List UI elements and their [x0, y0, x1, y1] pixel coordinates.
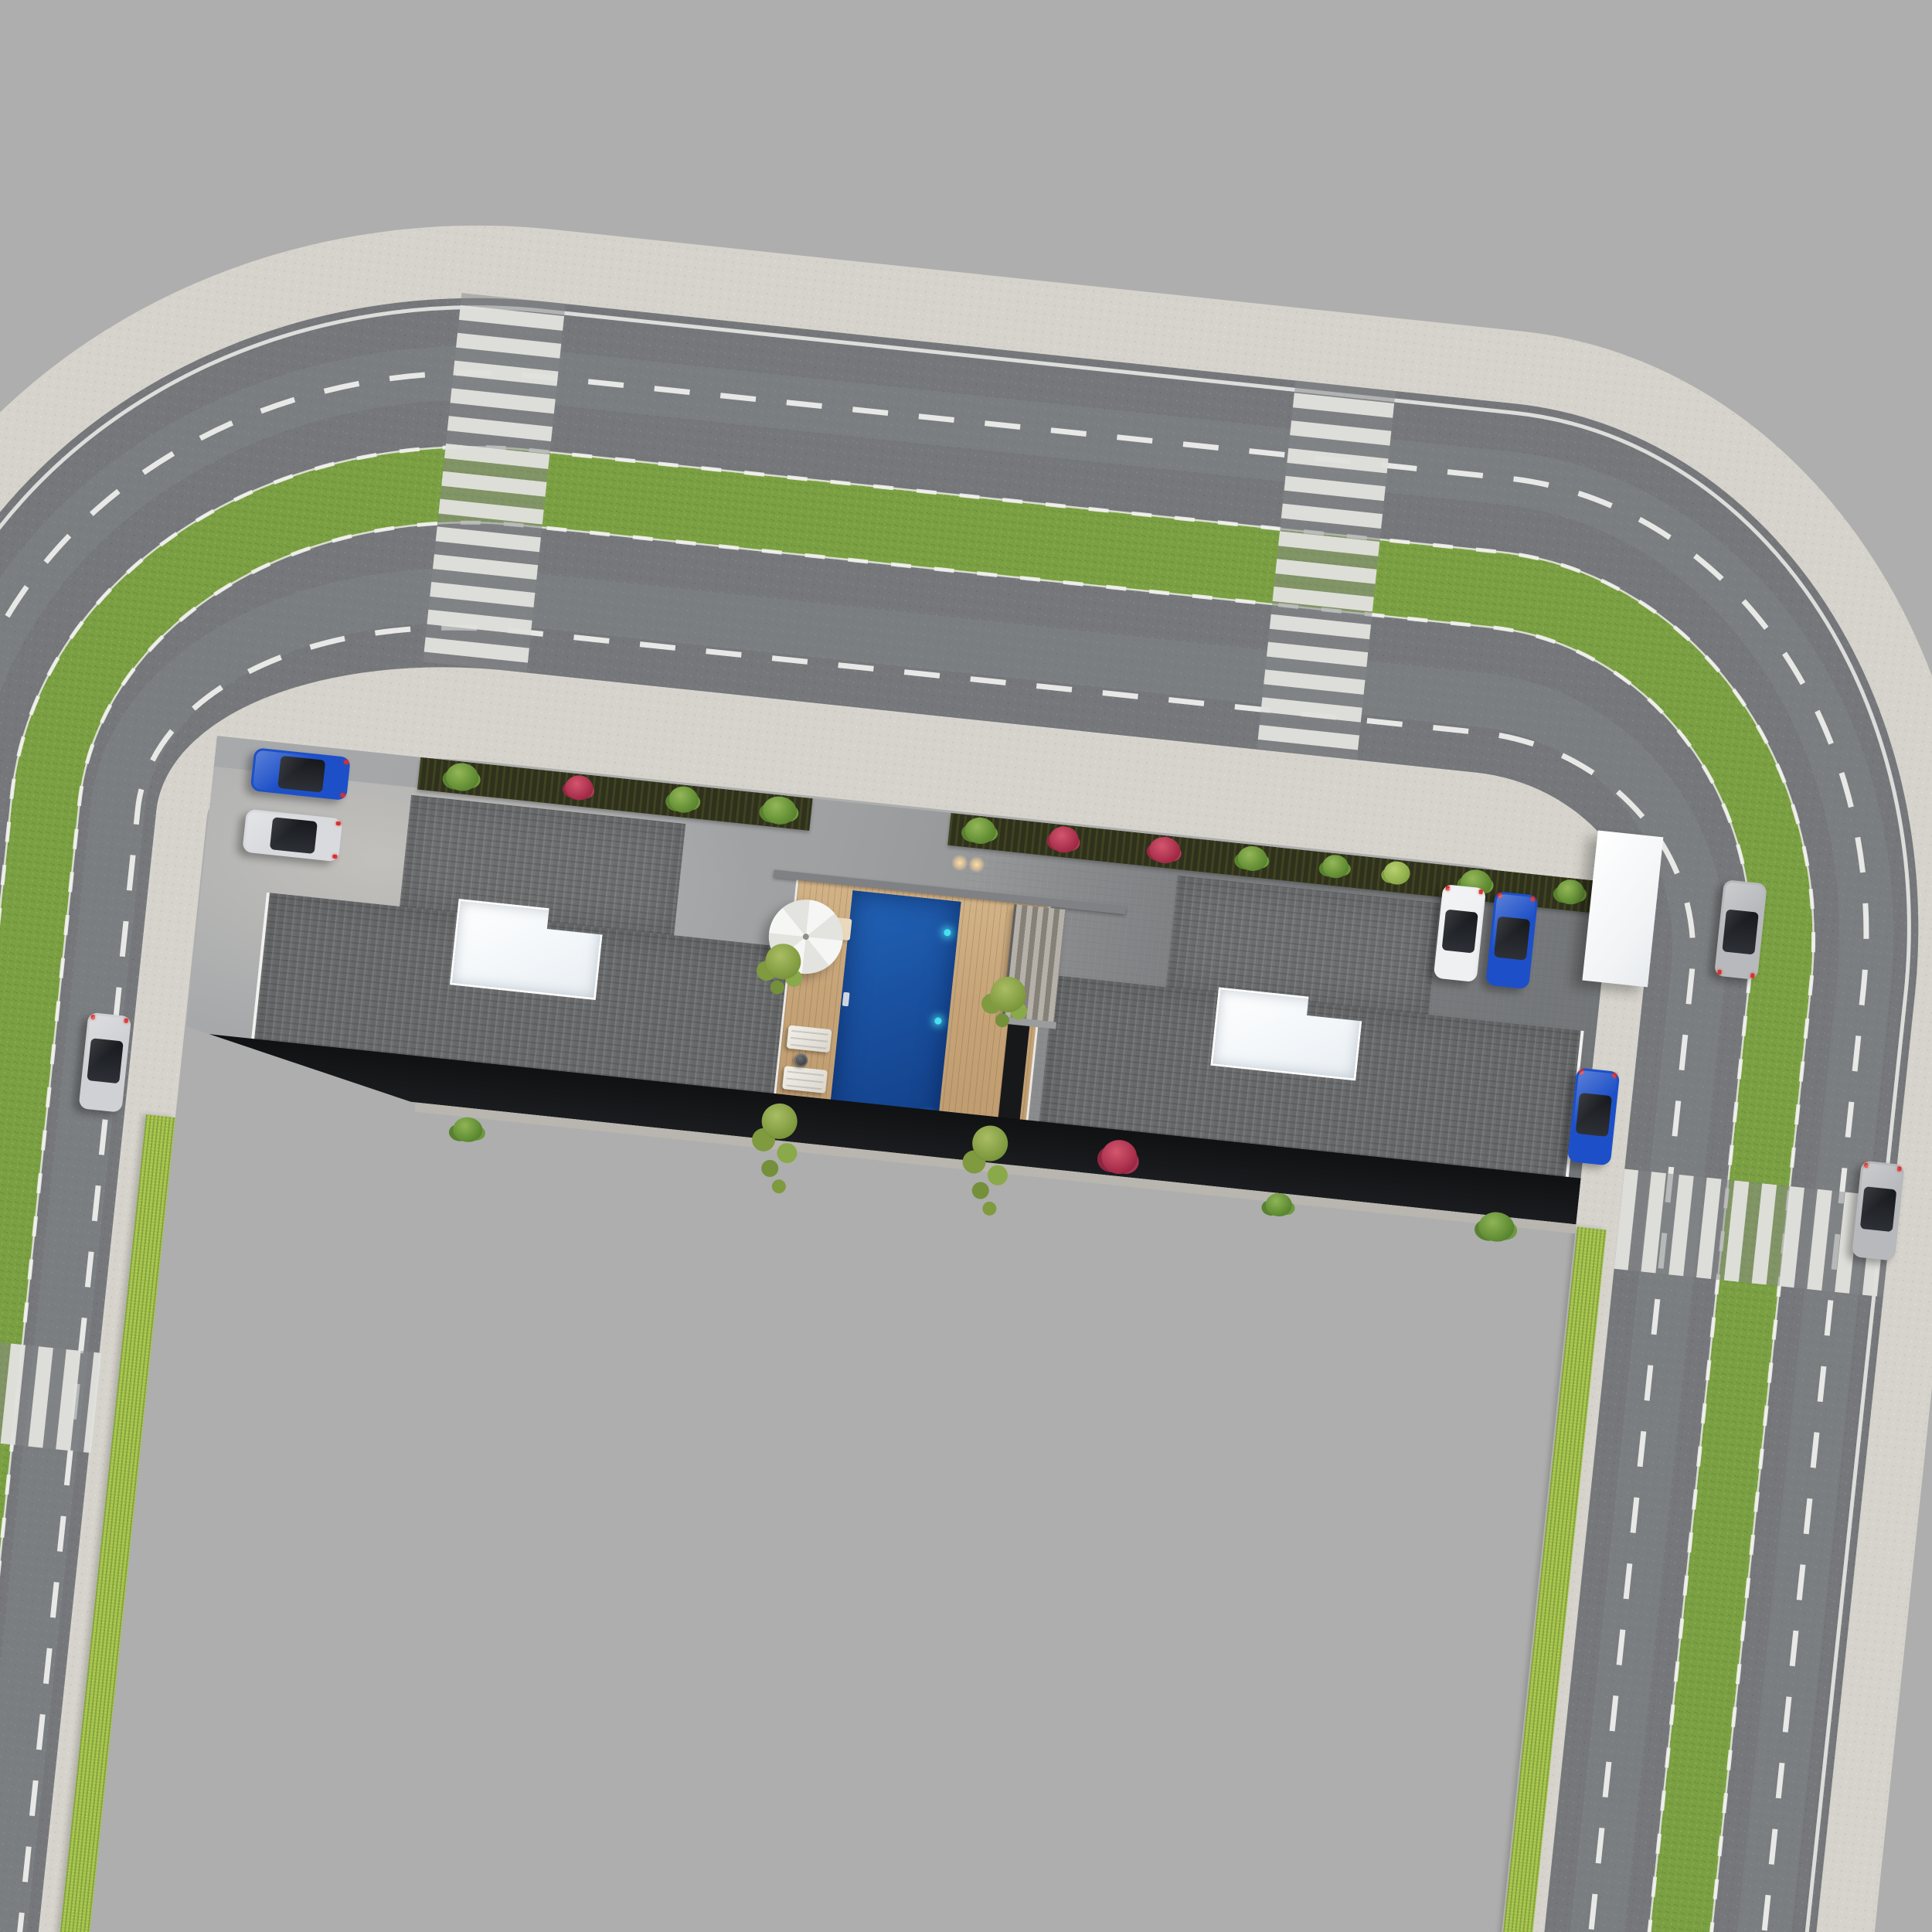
lounge-chair	[782, 1066, 828, 1094]
lounge-chair	[787, 1025, 832, 1053]
scene-rotation-wrapper	[0, 0, 1932, 1932]
aerial-site-render	[0, 0, 1932, 1932]
